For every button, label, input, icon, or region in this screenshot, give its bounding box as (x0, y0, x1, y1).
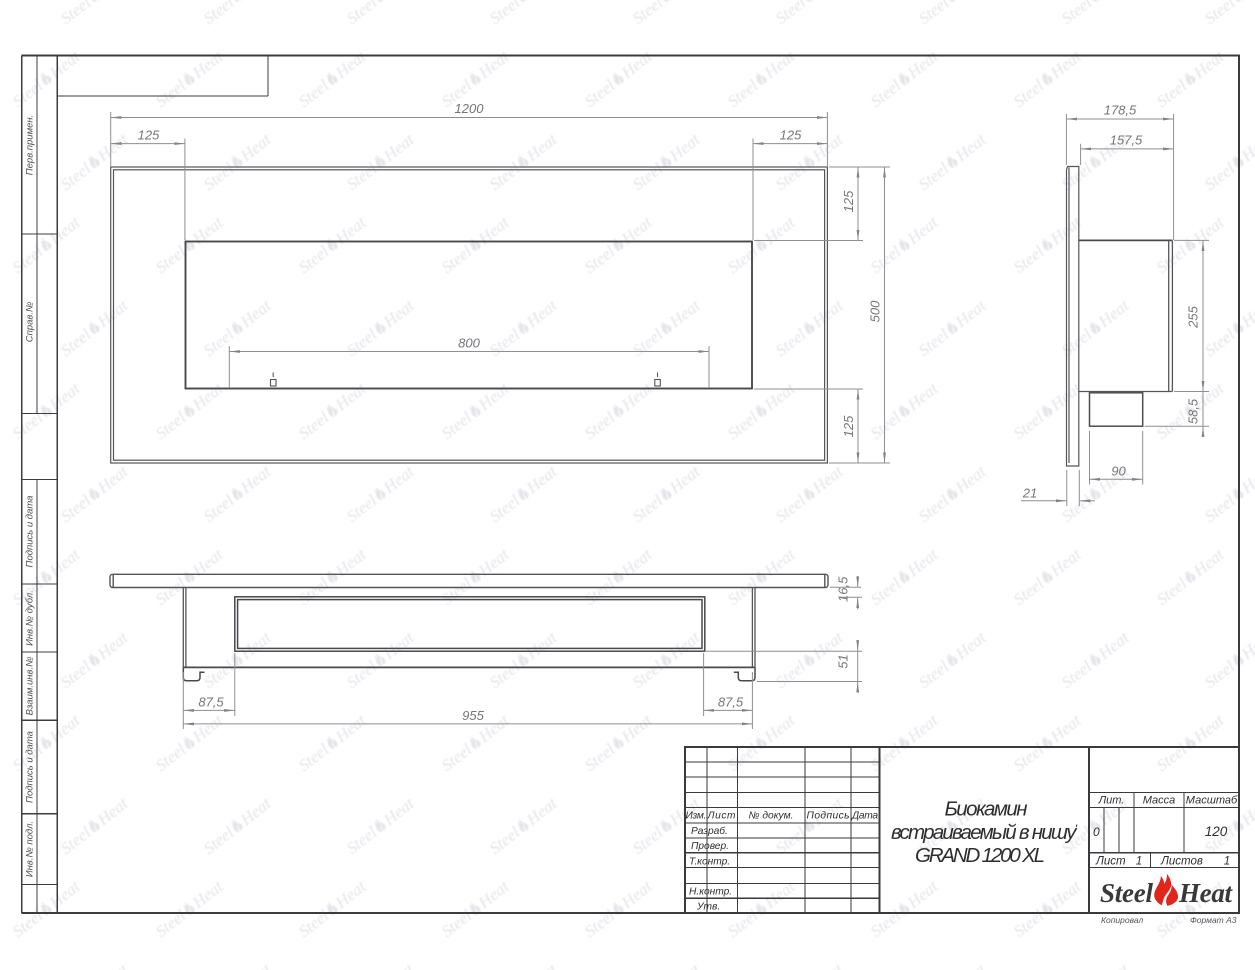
svg-text:Лист: Лист (707, 811, 737, 822)
svg-text:125: 125 (841, 190, 856, 212)
svg-text:16,5: 16,5 (836, 576, 851, 602)
svg-text:120: 120 (1205, 824, 1228, 839)
svg-text:Heat: Heat (1178, 878, 1233, 908)
svg-text:Утв.: Утв. (696, 902, 720, 913)
svg-text:500: 500 (868, 300, 883, 322)
svg-text:Подпись: Подпись (807, 811, 850, 822)
svg-text:Лист: Лист (1095, 856, 1126, 868)
svg-text:157,5: 157,5 (1110, 133, 1143, 148)
svg-text:Лит.: Лит. (1098, 795, 1125, 807)
svg-text:Подпись и дата: Подпись и дата (25, 731, 36, 803)
svg-text:0: 0 (1093, 825, 1100, 839)
svg-text:Масса: Масса (1143, 795, 1176, 807)
svg-text:255: 255 (1186, 305, 1201, 328)
svg-text:800: 800 (458, 336, 480, 351)
svg-text:21: 21 (1022, 486, 1037, 501)
svg-text:GRAND 1200 XL: GRAND 1200 XL (915, 844, 1045, 867)
svg-text:125: 125 (841, 415, 856, 437)
svg-text:Дата: Дата (851, 811, 878, 822)
svg-text:встраиваемый в нишу': встраиваемый в нишу' (891, 821, 1078, 844)
svg-text:Изм.: Изм. (686, 811, 707, 822)
svg-text:Листов: Листов (1160, 856, 1203, 868)
svg-text:87,5: 87,5 (198, 695, 224, 710)
svg-text:178,5: 178,5 (1104, 103, 1137, 118)
svg-text:125: 125 (780, 128, 802, 143)
svg-text:Формат A3: Формат A3 (1190, 915, 1237, 925)
svg-text:Подпись и дата: Подпись и дата (25, 496, 36, 568)
svg-text:90: 90 (1111, 464, 1126, 479)
svg-text:Инв.№ подл.: Инв.№ подл. (25, 821, 36, 877)
svg-text:Взаим.инв.№: Взаим.инв.№ (25, 657, 36, 716)
svg-text:Н.контр.: Н.контр. (689, 887, 732, 898)
svg-text:Steel: Steel (1100, 878, 1153, 908)
svg-text:1200: 1200 (455, 101, 485, 116)
svg-text:1: 1 (1136, 856, 1142, 868)
svg-text:Перв.примен.: Перв.примен. (25, 115, 36, 176)
svg-text:125: 125 (138, 128, 160, 143)
svg-text:Провер.: Провер. (691, 841, 729, 852)
svg-text:1: 1 (1224, 856, 1230, 868)
svg-text:Справ.№: Справ.№ (25, 302, 36, 343)
svg-text:58,5: 58,5 (1186, 398, 1201, 424)
svg-text:Биокамин: Биокамин (945, 798, 1028, 821)
svg-text:955: 955 (462, 708, 484, 723)
svg-text:Т.контр.: Т.контр. (689, 857, 730, 868)
svg-text:Разраб.: Разраб. (691, 825, 728, 837)
svg-text:Масштаб: Масштаб (1186, 795, 1238, 807)
svg-text:Копировал: Копировал (1101, 915, 1143, 925)
svg-text:№ докум.: № докум. (749, 811, 794, 822)
svg-text:87,5: 87,5 (718, 695, 744, 710)
svg-text:Инв.№ дубл.: Инв.№ дубл. (25, 590, 36, 646)
svg-text:51: 51 (836, 654, 851, 668)
